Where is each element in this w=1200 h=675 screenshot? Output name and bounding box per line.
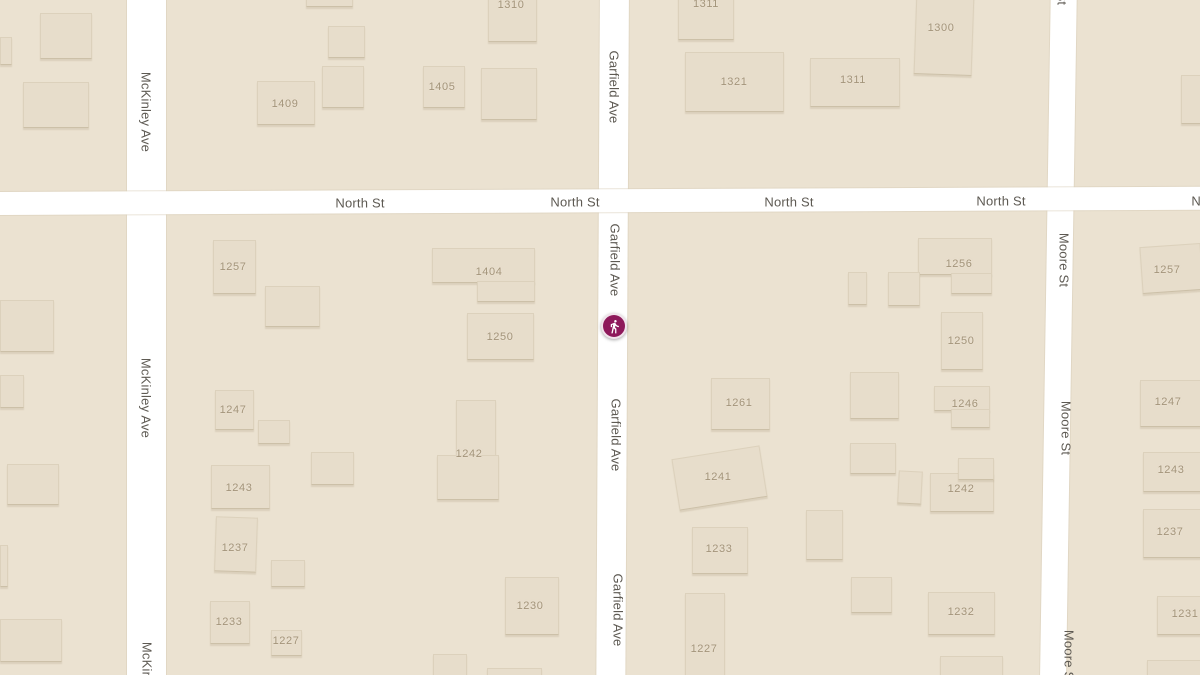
building (23, 82, 89, 128)
address-label: 1247 (220, 404, 247, 416)
building (951, 273, 992, 294)
address-label: 1237 (222, 542, 249, 554)
building (258, 420, 290, 444)
building (1147, 660, 1200, 675)
street-label-garfield-ave: Garfield Ave (609, 399, 624, 472)
address-label: 1237 (1157, 526, 1184, 538)
street-label-mckinley-ave: McKinley Ave (139, 358, 154, 438)
building (306, 0, 353, 7)
address-label: 1242 (948, 483, 975, 495)
building (850, 443, 896, 474)
street-label-north-st: North St (335, 196, 384, 211)
address-label: 1230 (517, 600, 544, 612)
building (265, 286, 320, 327)
address-label: 1311 (840, 74, 866, 86)
street-label-moore-st: Moore St (1062, 630, 1077, 675)
address-label: 1227 (273, 635, 300, 647)
building (7, 464, 59, 505)
building (850, 372, 899, 419)
address-label: 1231 (1172, 608, 1199, 620)
address-label: 1257 (220, 261, 247, 273)
street-label-mckinley-ave: McKinley Ave (139, 72, 154, 152)
street-label-garfield-ave: Garfield Ave (607, 51, 622, 124)
building (1181, 75, 1200, 124)
address-label: 1246 (952, 398, 979, 410)
address-label: 1232 (948, 606, 975, 618)
street-label-garfield-ave: Garfield Ave (608, 224, 623, 297)
street-label-north-st: North St (764, 195, 813, 210)
building (0, 545, 8, 587)
map-canvas[interactable]: McKinley AveMcKinley AveMcKinley AveGarf… (0, 0, 1200, 675)
building (477, 281, 535, 302)
address-label: 1247 (1155, 396, 1182, 408)
address-label: 1311 (693, 0, 719, 10)
address-label: 1300 (928, 22, 955, 34)
building (951, 409, 990, 428)
address-label: 1250 (487, 331, 514, 343)
address-label: 1227 (691, 643, 718, 655)
address-label: 1233 (706, 543, 733, 555)
building (848, 272, 867, 305)
address-label: 1409 (272, 98, 299, 110)
road-moore-st (1040, 0, 1077, 675)
address-label: 1233 (216, 616, 243, 628)
building (940, 656, 1003, 675)
building (271, 560, 305, 587)
building (0, 619, 62, 662)
building (958, 458, 994, 480)
building (685, 593, 725, 675)
address-label: 1404 (476, 266, 503, 278)
pedestrian-marker[interactable] (601, 313, 627, 339)
building (437, 455, 499, 500)
street-label-north-st: North St (550, 195, 599, 210)
building (851, 577, 892, 613)
street-label-north-st: North St (1191, 194, 1200, 209)
building (897, 470, 923, 504)
building (914, 0, 975, 76)
street-label-moore-st: Moore St (1057, 233, 1072, 287)
address-label: 1250 (948, 335, 975, 347)
address-label: 1242 (456, 448, 483, 460)
building (311, 452, 354, 485)
street-label-mckinley-ave: McKinley Ave (140, 642, 155, 675)
address-label: 1310 (498, 0, 525, 11)
building (40, 13, 92, 59)
pedestrian-icon (607, 319, 622, 334)
address-label: 1256 (946, 258, 973, 270)
building (888, 272, 920, 306)
street-label-garfield-ave: Garfield Ave (611, 574, 626, 647)
address-label: 1261 (726, 397, 753, 409)
address-label: 1241 (705, 471, 732, 483)
building (0, 300, 54, 352)
building (433, 654, 467, 675)
address-label: 1321 (721, 76, 748, 88)
address-label: 1405 (429, 81, 456, 93)
building (0, 375, 24, 408)
street-label-moore-st: Moore St (1059, 401, 1074, 455)
address-label: 1243 (226, 482, 253, 494)
building (328, 26, 365, 58)
address-label: 1257 (1154, 264, 1181, 276)
street-label-moore-st: Moore St (1055, 0, 1070, 5)
address-label: 1243 (1158, 464, 1185, 476)
building (0, 37, 12, 65)
street-label-north-st: North St (976, 194, 1025, 209)
building (487, 668, 542, 675)
building (806, 510, 843, 560)
building (322, 66, 364, 108)
building (481, 68, 537, 120)
